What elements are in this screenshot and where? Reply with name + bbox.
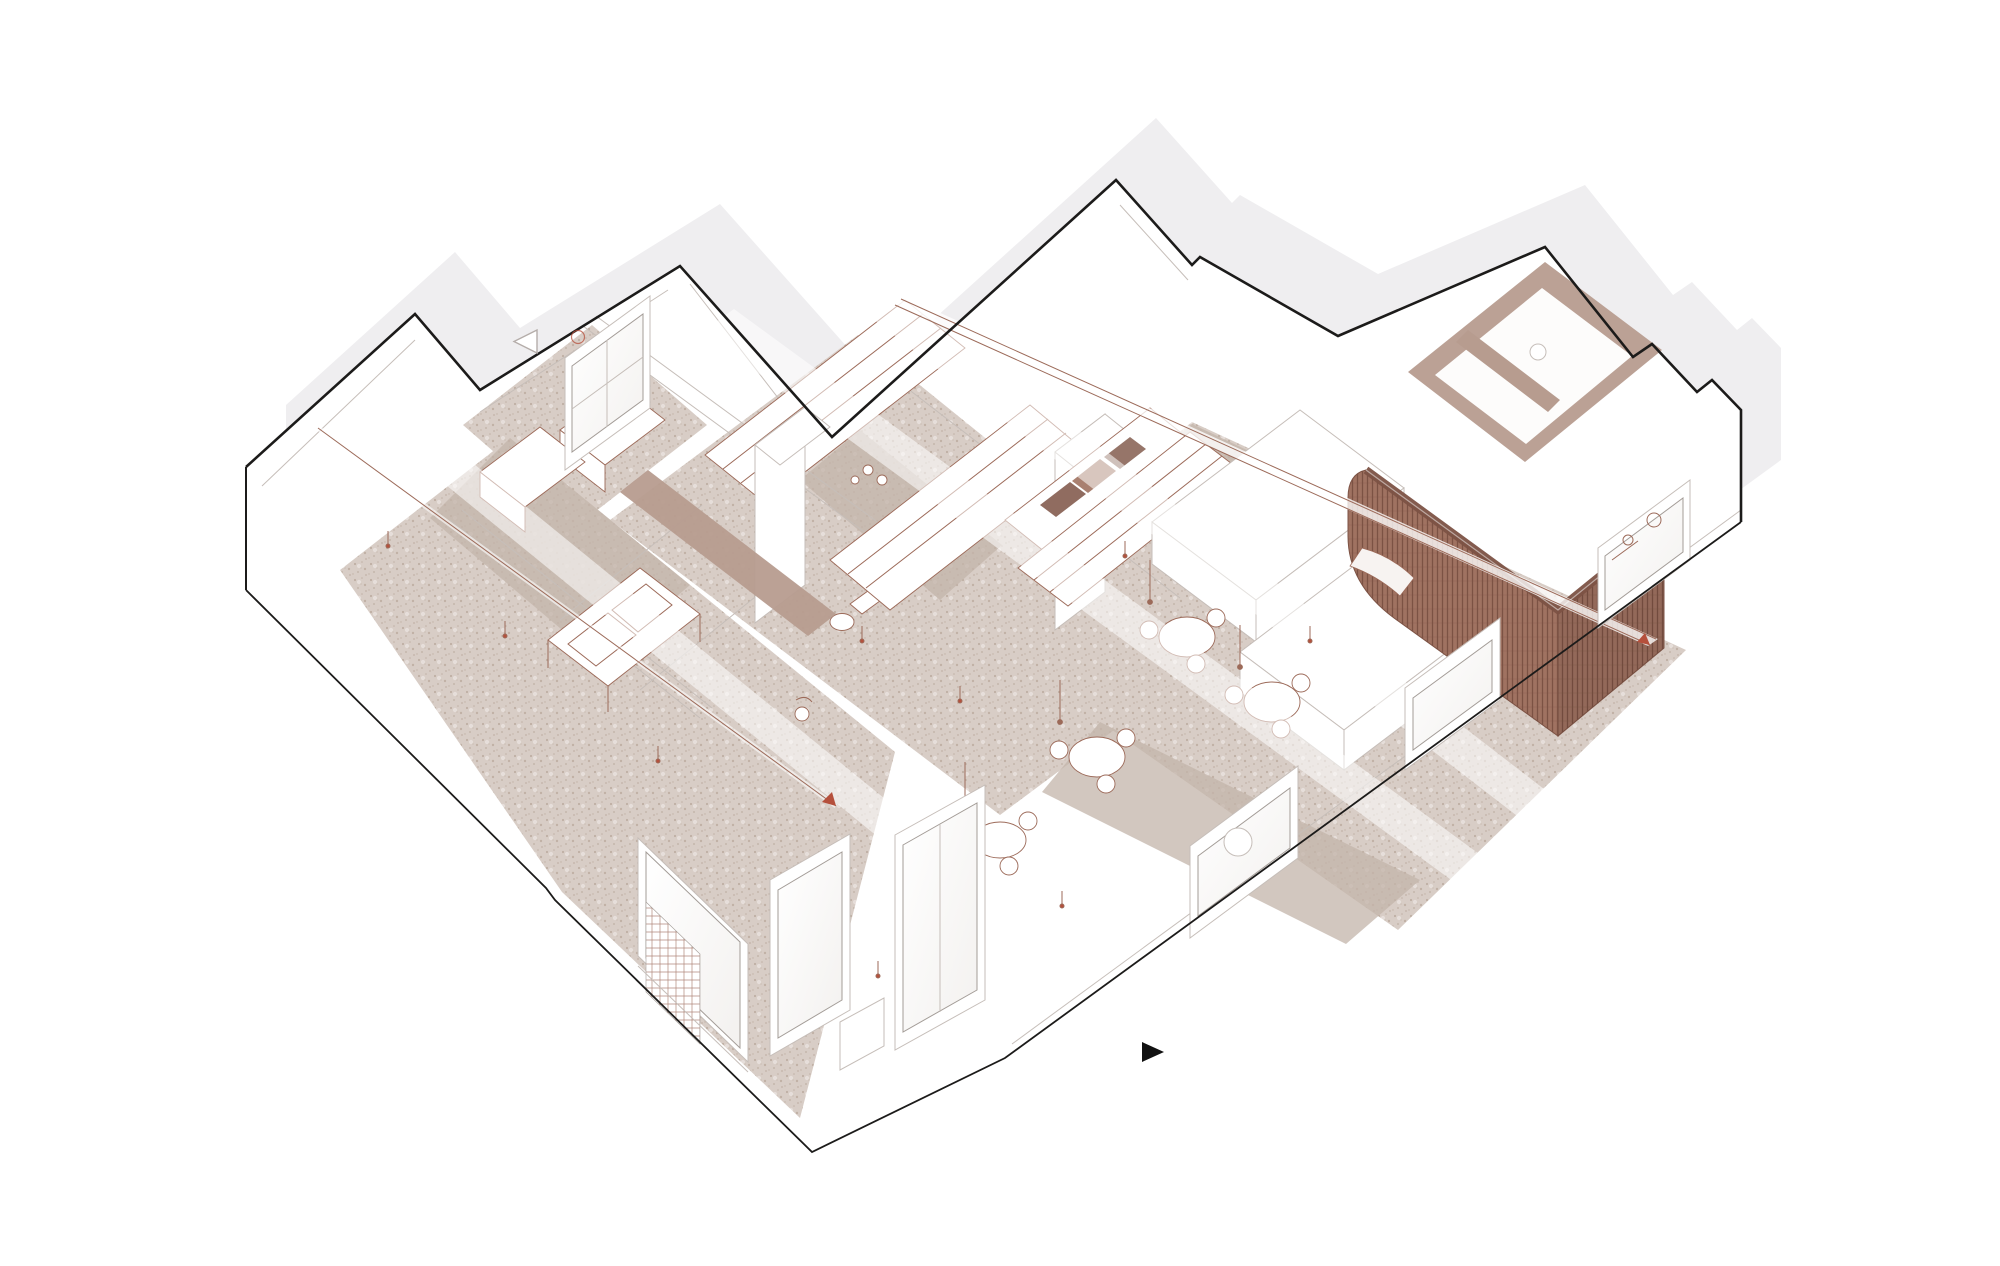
toilet (830, 614, 854, 631)
section-arrow-marker (1142, 1042, 1164, 1062)
ceiling-light (1530, 344, 1546, 360)
axonometric-floor-plan (0, 0, 2000, 1266)
axonometric-drawing-page (0, 0, 2000, 1266)
